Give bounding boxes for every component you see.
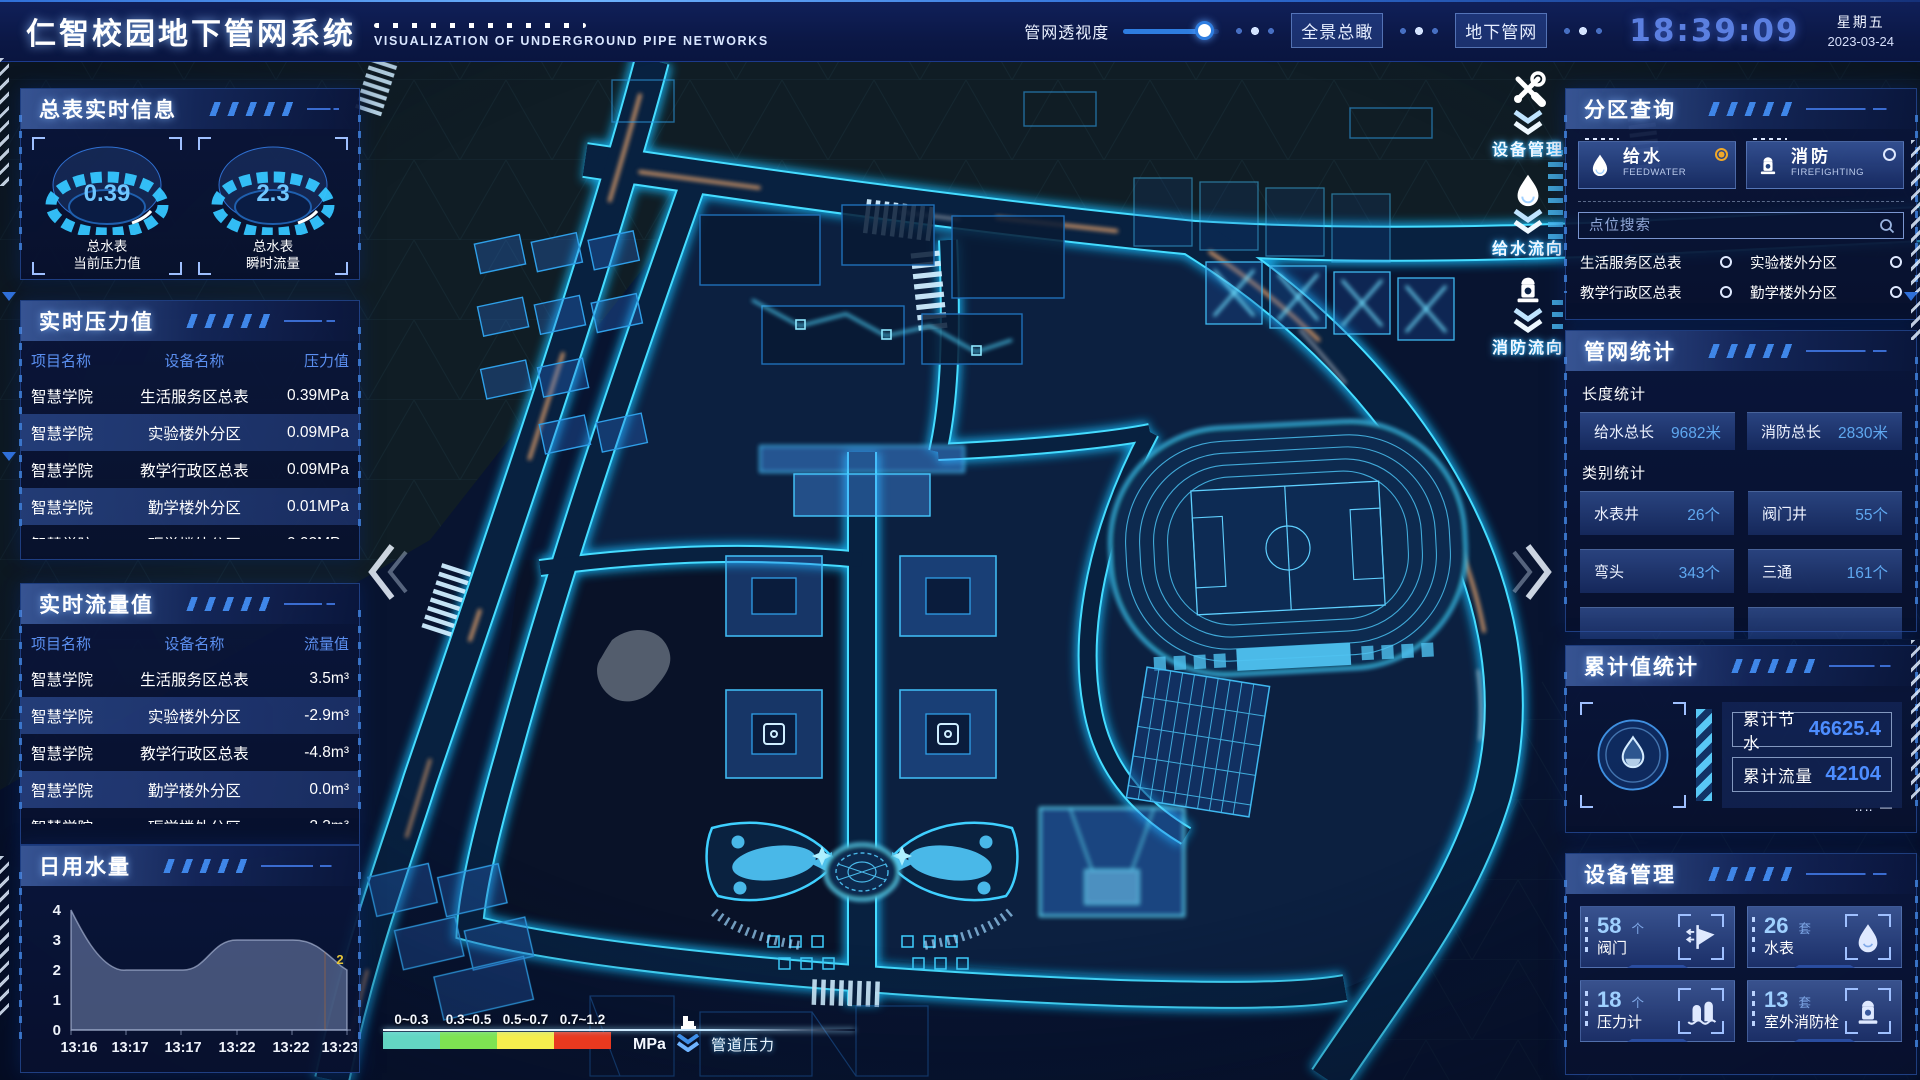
table-body: 智慧学院生活服务区总表0.39MPa 智慧学院实验楼外分区0.09MPa 智慧学… xyxy=(21,377,359,539)
panel-header: 分区查询 xyxy=(1566,89,1916,129)
table-row[interactable]: 智慧学院生活服务区总表3.5m³ xyxy=(21,660,359,697)
zone-item[interactable]: 生活服务区总表 xyxy=(1580,247,1732,277)
legend-segment xyxy=(554,1032,611,1049)
zone-item-label: 砺学楼外分区 xyxy=(1580,312,1667,314)
cumulative-values: 累计节水 46625.4 累计流量 42104 ‥‥ — xyxy=(1722,702,1902,808)
panel-title: 日用水量 xyxy=(39,851,131,881)
svg-text:13:23: 13:23 xyxy=(321,1040,357,1056)
stat-box: 水表井 26个 xyxy=(1580,491,1734,535)
zone-item-label: 宿舍区泵房 xyxy=(1750,312,1823,314)
table-header: 项目名称设备名称流量值 xyxy=(21,624,359,660)
legend-range: 0.3~0.5 xyxy=(440,1012,497,1027)
legend-range: 0.5~0.7 xyxy=(497,1012,554,1027)
tab-sublabel: FIREFIGHTING xyxy=(1791,165,1864,181)
pipe-opacity-slider[interactable] xyxy=(1123,22,1219,40)
dot-separator xyxy=(1561,26,1605,36)
daily-water-panel: 日用水量 4 3 2 1 0 xyxy=(20,845,360,1073)
pressure-meter-icon xyxy=(675,1014,701,1052)
cumulative-row: 累计流量 42104 xyxy=(1732,757,1892,792)
legend-title: 管道压力 xyxy=(711,1034,775,1055)
search-input[interactable] xyxy=(1587,217,1879,235)
table-row[interactable]: 智慧学院实验楼外分区0.09MPa xyxy=(21,414,359,451)
daily-water-chart: 4 3 2 1 0 13:16 13:17 13:17 13:22 13:22 … xyxy=(21,886,359,1069)
stat-box-clipped xyxy=(1580,607,1734,639)
radio-icon[interactable] xyxy=(1890,286,1902,298)
realtime-flow-panel: 实时流量值 项目名称设备名称流量值 智慧学院生活服务区总表3.5m³ 智慧学院实… xyxy=(20,583,360,845)
length-stats-title: 长度统计 xyxy=(1566,371,1916,412)
chevron-down-icon xyxy=(1508,308,1548,334)
zone-item-label: 生活服务区总表 xyxy=(1580,252,1682,273)
line-decor xyxy=(284,603,345,605)
edge-arrow-decor xyxy=(2,292,16,301)
stat-box: 弯头 343个 xyxy=(1580,549,1734,593)
legend-range: 0.7~1.2 xyxy=(554,1012,611,1027)
zone-item[interactable]: 宿舍区泵房 xyxy=(1750,307,1902,313)
pipe-stats-panel: 管网统计 长度统计 给水总长 9682米 消防总长 2830米 类别统计 水表井… xyxy=(1565,330,1917,632)
panel-title: 总表实时信息 xyxy=(39,94,177,124)
underground-pipes-button[interactable]: 地下管网 xyxy=(1455,13,1547,48)
zone-item[interactable]: 教学行政区总表 xyxy=(1580,277,1732,307)
edge-tick-decor xyxy=(1911,140,1920,340)
dot-separator xyxy=(1233,26,1277,36)
stripe-decor xyxy=(1696,709,1712,801)
weekday: 星期五 xyxy=(1837,12,1885,32)
date: 2023-03-24 xyxy=(1828,34,1895,49)
valve-icon xyxy=(1678,914,1724,960)
realtime-pressure-panel: 实时压力值 项目名称设备名称压力值 智慧学院生活服务区总表0.39MPa 智慧学… xyxy=(20,300,360,560)
flow-gauge-card: 2.3 总水表 瞬时流量 xyxy=(198,137,348,275)
gauge-row: 0.39 总水表 当前压力值 2.3 总水表 瞬时流量 xyxy=(21,129,359,275)
device-management-panel: 设备管理 58个 阀门 2 xyxy=(1565,853,1917,1075)
svg-text:13:16: 13:16 xyxy=(60,1040,97,1056)
panel-header: 日用水量 xyxy=(21,846,359,886)
zone-item-label: 教学行政区总表 xyxy=(1580,282,1682,303)
edge-tick-decor xyxy=(0,856,9,1016)
pressure-gauge-card: 0.39 总水表 当前压力值 xyxy=(32,137,182,275)
edge-tick-decor xyxy=(1911,640,1920,800)
panel-header: 设备管理 xyxy=(1566,854,1916,894)
panel-header: 管网统计 xyxy=(1566,331,1916,371)
pressure-gauge-icon xyxy=(1678,988,1724,1034)
svg-text:3: 3 xyxy=(53,932,61,949)
pan-right-arrow-icon[interactable] xyxy=(1508,542,1554,602)
stat-box: 给水总长 9682米 xyxy=(1580,412,1735,450)
category-stats-title: 类别统计 xyxy=(1566,450,1916,491)
search-icon[interactable] xyxy=(1879,218,1895,234)
control-label: 设备管理 xyxy=(1492,136,1564,160)
svg-text:0.39: 0.39 xyxy=(84,180,131,207)
line-decor xyxy=(1806,873,1902,875)
panel-header: 实时流量值 xyxy=(21,584,359,624)
top-header: 仁智校园地下管网系统 VISUALIZATION OF UNDERGROUND … xyxy=(0,0,1920,62)
slash-decor xyxy=(1706,344,1794,358)
dashboard-screen: 设备管理 给水流向 消防流向 xyxy=(0,0,1920,1080)
pan-left-arrow-icon[interactable] xyxy=(366,542,412,602)
svg-text:13:17: 13:17 xyxy=(111,1040,148,1056)
svg-text:1: 1 xyxy=(53,992,61,1009)
tools-icon xyxy=(1508,70,1548,110)
slash-decor xyxy=(161,859,249,873)
line-decor xyxy=(261,865,345,867)
tab-label: 消防 xyxy=(1791,149,1864,165)
line-decor xyxy=(1806,108,1902,110)
slash-decor xyxy=(184,597,272,611)
table-row[interactable]: 智慧学院砺学楼外分区0.02MPa xyxy=(21,525,359,539)
stat-box: 三通 161个 xyxy=(1748,549,1902,593)
cumulative-row: 累计节水 46625.4 xyxy=(1732,712,1892,747)
water-drop-icon xyxy=(1509,171,1547,209)
tab-firefighting[interactable]: 消防 FIREFIGHTING xyxy=(1746,141,1904,189)
zone-list: 生活服务区总表 实验楼外分区 教学行政区总表 勤学楼外分区 砺学楼外分区 宿舍区… xyxy=(1566,239,1916,313)
overview-button[interactable]: 全景总瞰 xyxy=(1291,13,1383,48)
dots-decor: ‥‥ — xyxy=(1855,800,1894,814)
app-subtitle-block: VISUALIZATION OF UNDERGROUND PIPE NETWOR… xyxy=(374,13,769,48)
tab-sublabel: FEEDWATER xyxy=(1623,165,1686,181)
slash-decor xyxy=(1729,659,1817,673)
device-card-water-meters[interactable]: 26套 水表 xyxy=(1747,906,1902,968)
dot-row-decor xyxy=(374,23,586,28)
control-label: 消防流向 xyxy=(1492,334,1564,358)
meter-realtime-panel: 总表实时信息 0.39 总水表 当前压力值 xyxy=(20,88,360,280)
hydrant-icon xyxy=(1845,988,1891,1034)
app-subtitle: VISUALIZATION OF UNDERGROUND PIPE NETWOR… xyxy=(374,34,769,48)
header-controls: 管网透视度 全景总瞰 地下管网 18:39:09 星期五 2023-03-24 xyxy=(1024,12,1894,49)
tab-label: 给水 xyxy=(1623,149,1686,165)
table-body: 智慧学院生活服务区总表3.5m³ 智慧学院实验楼外分区-2.9m³ 智慧学院教学… xyxy=(21,660,359,824)
chart-end-label: 2 xyxy=(336,952,343,967)
panel-title: 实时流量值 xyxy=(39,589,154,619)
svg-text:2: 2 xyxy=(53,962,61,979)
zone-tabs: 给水 FEEDWATER 消防 FIREFIGHTING xyxy=(1566,129,1916,189)
table-row[interactable]: 智慧学院勤学楼外分区0.0m³ xyxy=(21,771,359,808)
stat-box: 消防总长 2830米 xyxy=(1747,412,1902,450)
line-decor xyxy=(1829,665,1902,667)
dashed-divider xyxy=(1578,201,1904,202)
stat-box: 阀门井 55个 xyxy=(1748,491,1902,535)
feedwater-flow-control[interactable]: 给水流向 xyxy=(1492,171,1564,259)
tab-feedwater[interactable]: 给水 FEEDWATER xyxy=(1578,141,1736,189)
device-card-hydrants[interactable]: 13套 室外消防栓 xyxy=(1747,980,1902,1042)
legend-segment xyxy=(383,1032,440,1049)
date-block: 星期五 2023-03-24 xyxy=(1828,12,1895,49)
radio-icon[interactable] xyxy=(1720,256,1732,268)
gauge-label: 总水表 瞬时流量 xyxy=(198,238,348,272)
table-row[interactable]: 智慧学院砺学楼外分区2.3m³ xyxy=(21,808,359,824)
slash-decor xyxy=(1706,102,1794,116)
panel-header: 总表实时信息 xyxy=(21,89,359,129)
svg-text:13:17: 13:17 xyxy=(164,1040,201,1056)
device-grid: 58个 阀门 26套 水表 xyxy=(1566,894,1916,1042)
table-row[interactable]: 智慧学院教学行政区总表0.09MPa xyxy=(21,451,359,488)
line-decor xyxy=(307,108,345,110)
gauge-dial: 0.39 xyxy=(32,139,182,235)
hydrant-icon xyxy=(1509,270,1547,308)
slider-thumb[interactable] xyxy=(1195,21,1214,40)
search-box[interactable] xyxy=(1578,212,1904,239)
edge-arrow-decor xyxy=(1904,292,1918,301)
gauge-dial: 2.3 xyxy=(198,139,348,235)
length-stats: 给水总长 9682米 消防总长 2830米 xyxy=(1566,412,1916,450)
stat-box-clipped xyxy=(1748,607,1902,639)
slash-decor xyxy=(207,102,295,116)
table-header: 项目名称设备名称压力值 xyxy=(21,341,359,377)
panel-header: 累计值统计 xyxy=(1566,646,1916,686)
zone-item-label: 实验楼外分区 xyxy=(1750,252,1837,273)
svg-text:4: 4 xyxy=(53,902,62,919)
app-title: 仁智校园地下管网系统 xyxy=(26,9,356,53)
panel-title: 分区查询 xyxy=(1584,94,1676,124)
panel-title: 设备管理 xyxy=(1584,859,1676,889)
line-decor xyxy=(1806,350,1902,352)
legend-segment xyxy=(440,1032,497,1049)
legend-range: 0~0.3 xyxy=(383,1012,440,1027)
pressure-legend: 0~0.3 0.3~0.5 0.5~0.7 0.7~1.2 MPa 管道压力 xyxy=(383,1012,803,1049)
table-row[interactable]: 智慧学院教学行政区总表-4.8m³ xyxy=(21,734,359,771)
svg-text:13:22: 13:22 xyxy=(218,1040,255,1056)
hydrant-icon xyxy=(1755,152,1781,178)
legend-segment xyxy=(497,1032,554,1049)
slash-decor xyxy=(184,314,272,328)
slash-decor xyxy=(1706,867,1794,881)
radio-selected-icon[interactable] xyxy=(1715,148,1728,161)
water-meter-icon xyxy=(1845,914,1891,960)
gauge-label: 总水表 当前压力值 xyxy=(32,238,182,272)
cumulative-content: 累计节水 46625.4 累计流量 42104 ‥‥ — xyxy=(1566,686,1916,808)
svg-text:0: 0 xyxy=(53,1022,61,1039)
svg-text:2.3: 2.3 xyxy=(256,180,289,207)
water-icon-card xyxy=(1580,702,1686,808)
category-stats: 水表井 26个 阀门井 55个 弯头 343个 三通 161个 xyxy=(1566,491,1916,639)
table-row[interactable]: 智慧学院实验楼外分区-2.9m³ xyxy=(21,697,359,734)
table-row[interactable]: 智慧学院生活服务区总表0.39MPa xyxy=(21,377,359,414)
radio-icon[interactable] xyxy=(1883,148,1896,161)
cumulative-stats-panel: 累计值统计 累计节水 46625.4 累计流量 42 xyxy=(1565,645,1917,833)
zone-query-panel: 分区查询 给水 FEEDWATER xyxy=(1565,88,1917,320)
control-label: 给水流向 xyxy=(1492,235,1564,259)
radio-icon[interactable] xyxy=(1890,256,1902,268)
clock-time: 18:39:09 xyxy=(1629,13,1799,49)
svg-text:13:22: 13:22 xyxy=(272,1040,309,1056)
radio-icon[interactable] xyxy=(1720,286,1732,298)
device-card-valves[interactable]: 58个 阀门 xyxy=(1580,906,1735,968)
app-title-block: 仁智校园地下管网系统 VISUALIZATION OF UNDERGROUND … xyxy=(26,9,769,53)
water-drop-icon xyxy=(1587,152,1613,178)
water-drop-icon xyxy=(1591,713,1675,797)
dot-separator xyxy=(1397,26,1441,36)
zone-item[interactable]: 实验楼外分区 xyxy=(1750,247,1902,277)
legend-color-bar xyxy=(383,1032,611,1049)
edge-tick-decor xyxy=(0,58,9,186)
zone-item[interactable]: 勤学楼外分区 xyxy=(1750,277,1902,307)
chevron-down-icon xyxy=(1508,110,1548,136)
device-card-pressure-gauges[interactable]: 18个 压力计 xyxy=(1580,980,1735,1042)
panel-title: 累计值统计 xyxy=(1584,651,1699,681)
zone-item-label: 勤学楼外分区 xyxy=(1750,282,1837,303)
device-management-control[interactable]: 设备管理 xyxy=(1492,70,1564,160)
zone-item[interactable]: 砺学楼外分区 xyxy=(1580,307,1732,313)
table-row[interactable]: 智慧学院勤学楼外分区0.01MPa xyxy=(21,488,359,525)
legend-unit: MPa xyxy=(633,1036,666,1054)
panel-title: 实时压力值 xyxy=(39,306,154,336)
opacity-slider-label: 管网透视度 xyxy=(1024,19,1109,43)
edge-arrow-decor xyxy=(2,452,16,461)
panel-title: 管网统计 xyxy=(1584,336,1676,366)
legend-range-labels: 0~0.3 0.3~0.5 0.5~0.7 0.7~1.2 xyxy=(383,1012,611,1027)
line-decor xyxy=(284,320,345,322)
firefighting-flow-control[interactable]: 消防流向 xyxy=(1492,270,1564,358)
slider-fill xyxy=(1123,29,1205,34)
chevron-down-icon xyxy=(1508,209,1548,235)
panel-header: 实时压力值 xyxy=(21,301,359,341)
